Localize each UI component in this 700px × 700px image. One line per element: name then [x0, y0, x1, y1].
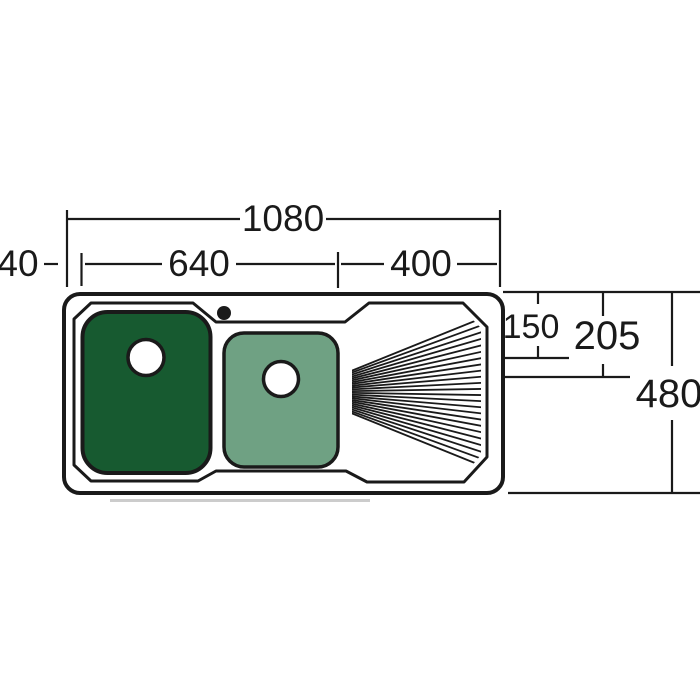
dim-label-overall-depth: 480	[636, 372, 700, 416]
dim-label-left-offset: 40	[0, 243, 39, 284]
diagram-canvas: 1080 40 640 400 150 205 480	[0, 0, 700, 700]
dim-label-bowl-zone-width: 640	[168, 243, 230, 284]
tap-hole	[217, 306, 231, 320]
half-bowl-drain-hole	[264, 362, 299, 397]
dim-label-drainer-width: 400	[390, 243, 452, 284]
main-bowl-drain-hole	[128, 340, 164, 376]
dim-label-drainer-inset-b: 205	[574, 314, 641, 358]
dim-left-offset	[44, 253, 82, 286]
main-bowl	[83, 312, 211, 473]
dim-label-drainer-inset-a: 150	[503, 308, 560, 346]
sink-dimension-diagram: 1080 40 640 400 150 205 480	[0, 0, 700, 700]
dim-label-overall-width: 1080	[242, 198, 324, 239]
half-bowl	[224, 333, 338, 467]
